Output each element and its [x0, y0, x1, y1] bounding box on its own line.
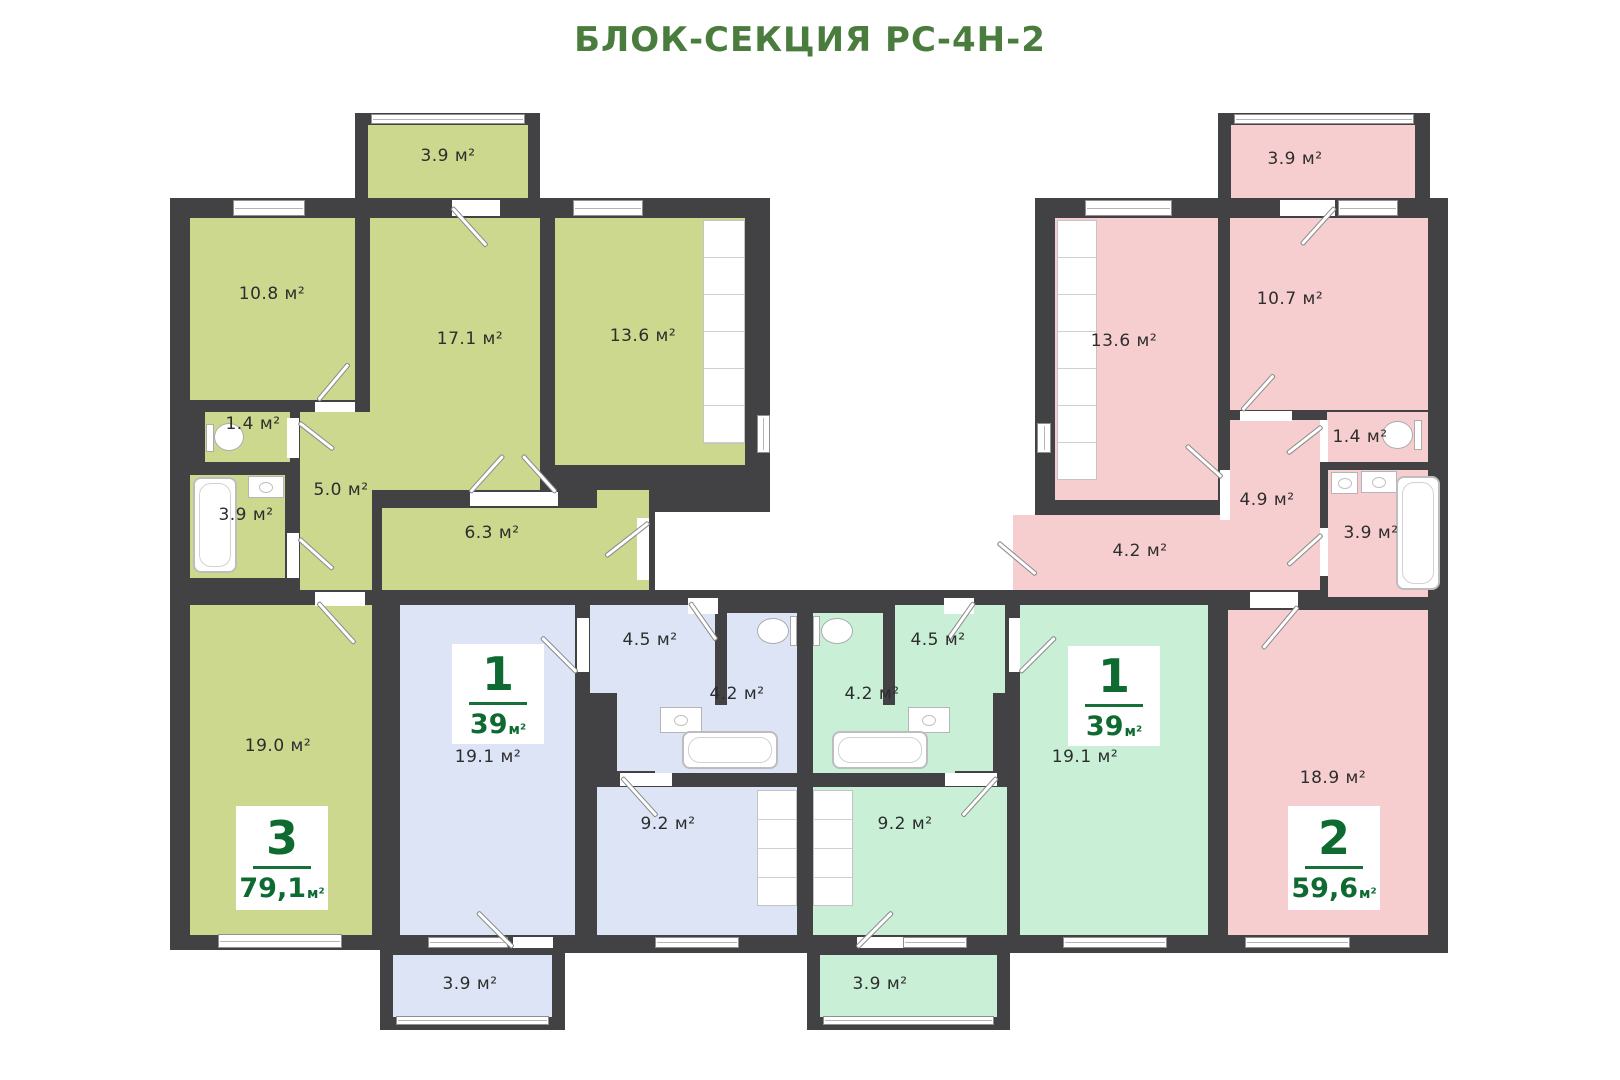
window [1085, 200, 1172, 216]
window [428, 937, 508, 948]
room-label-13-6-apt2: 13.6 м² [1091, 331, 1157, 351]
apartment-badge-1-left: 1 39м² [452, 644, 544, 744]
door-opening [513, 937, 553, 948]
room-label-wc-1-4: 1.4 м² [225, 414, 280, 434]
door-opening [1240, 411, 1292, 421]
room-label-corridor-6-3: 6.3 м² [464, 523, 519, 543]
bathtub-icon [682, 731, 778, 769]
toilet-icon [790, 616, 797, 646]
window [1037, 423, 1051, 453]
apartment-badge-2: 2 59,6м² [1288, 806, 1380, 910]
area-unit: м² [509, 723, 527, 738]
room-label-balcony-apt2: 3.9 м² [1267, 149, 1322, 169]
kitchen-units-icon [757, 790, 797, 906]
toilet-icon [757, 618, 789, 644]
area-unit: м² [1359, 887, 1377, 902]
door-opening [577, 618, 589, 672]
window [1063, 937, 1167, 948]
room-label-balcony-left: 3.9 м² [442, 974, 497, 994]
door-opening [315, 402, 355, 412]
window [233, 200, 305, 216]
bathtub-icon [193, 477, 237, 573]
room-label-balcony-apt3: 3.9 м² [420, 146, 475, 166]
bathtub-icon [832, 731, 928, 769]
window [655, 937, 739, 948]
apartment-rooms-count: 3 [266, 815, 298, 861]
window [903, 937, 967, 948]
room-label-hall-5-0: 5.0 м² [313, 480, 368, 500]
room-label-balcony-right: 3.9 м² [852, 974, 907, 994]
badge-divider [253, 866, 311, 869]
toilet-icon [206, 424, 214, 452]
room-hall-5-0 [300, 412, 372, 590]
sink-icon [1361, 471, 1397, 493]
window [218, 934, 342, 948]
room-label-hall-4-5-left: 4.5 м² [622, 630, 677, 650]
window [396, 1016, 549, 1025]
room-label-17-1: 17.1 м² [437, 329, 503, 349]
kitchen-units-icon [813, 790, 853, 906]
room-label-10-8: 10.8 м² [239, 284, 305, 304]
apartment-total-area: 79,1 [239, 875, 306, 902]
room-balcony-apt2 [1231, 125, 1415, 198]
window [757, 415, 770, 453]
apartment-badge-3: 3 79,1м² [236, 806, 328, 910]
room-label-bath-4-2-right: 4.2 м² [844, 684, 899, 704]
room-label-wc-1-4-apt2: 1.4 м² [1332, 427, 1387, 447]
bathtub-icon [1396, 476, 1440, 590]
window [1234, 114, 1414, 124]
door-opening [1009, 618, 1020, 672]
room-balcony-right [820, 955, 997, 1017]
area-unit: м² [307, 887, 325, 902]
room-label-hall-4-9: 4.9 м² [1239, 490, 1294, 510]
washing-machine-icon [1331, 472, 1358, 494]
toilet-icon [813, 616, 820, 646]
apartment-rooms-count: 2 [1318, 815, 1350, 861]
room-bedroom-10-7 [1230, 218, 1428, 410]
floor-plan: БЛОК-СЕКЦИЯ РС-4Н-2 [0, 0, 1620, 1080]
toilet-icon [1414, 420, 1422, 450]
room-living-17-1 [370, 218, 540, 490]
apartment-total-area: 39 [470, 711, 508, 738]
badge-divider [1085, 704, 1143, 707]
room-label-corridor-4-2: 4.2 м² [1112, 541, 1167, 561]
window [371, 114, 525, 124]
room-label-19-0: 19.0 м² [245, 736, 311, 756]
area-unit: м² [1125, 725, 1143, 740]
sink-icon [248, 476, 284, 498]
room-label-bath-4-2-left: 4.2 м² [709, 684, 764, 704]
badge-divider [1305, 866, 1363, 869]
room-label-bath-3-9: 3.9 м² [218, 505, 273, 525]
window [573, 200, 643, 216]
room-label-19-1-right: 19.1 м² [1052, 747, 1118, 767]
sink-icon [908, 707, 950, 733]
window [1338, 200, 1398, 216]
window [1245, 937, 1350, 948]
apartment-total-area: 39 [1086, 713, 1124, 740]
closet-icon [703, 220, 745, 444]
room-label-18-9: 18.9 м² [1300, 768, 1366, 788]
badge-divider [469, 702, 527, 705]
apartment-rooms-count: 1 [482, 651, 514, 697]
apartment-badge-1-right: 1 39м² [1068, 646, 1160, 746]
door-opening [470, 492, 558, 506]
toilet-icon [821, 618, 853, 644]
room-label-kitchen-9-2-right: 9.2 м² [877, 814, 932, 834]
sink-icon [660, 707, 702, 733]
room-label-bath-3-9-apt2: 3.9 м² [1343, 523, 1398, 543]
room-label-kitchen-9-2-left: 9.2 м² [640, 814, 695, 834]
apartment-rooms-count: 1 [1098, 653, 1130, 699]
apartment-total-area: 59,6 [1291, 875, 1358, 902]
page-title: БЛОК-СЕКЦИЯ РС-4Н-2 [0, 20, 1620, 60]
door-opening [1250, 592, 1298, 608]
room-bedroom-10-8 [190, 218, 355, 400]
window [823, 1016, 994, 1025]
room-label-13-6: 13.6 м² [610, 326, 676, 346]
room-label-19-1-left: 19.1 м² [455, 747, 521, 767]
room-label-hall-4-5-right: 4.5 м² [910, 630, 965, 650]
room-label-10-7: 10.7 м² [1257, 289, 1323, 309]
